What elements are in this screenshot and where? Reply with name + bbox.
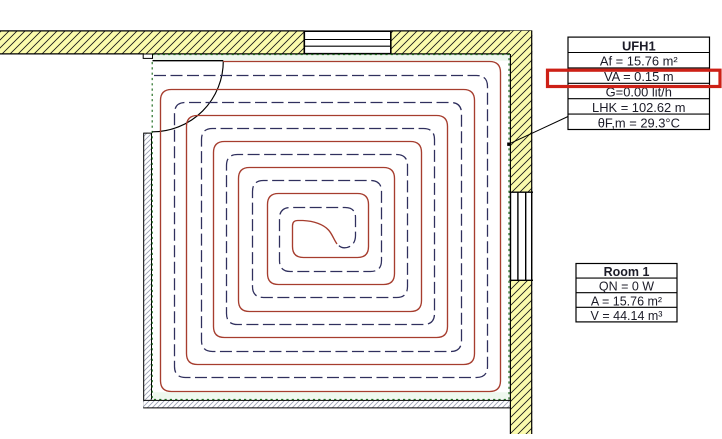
svg-text:Af = 15.76 m²: Af = 15.76 m² bbox=[600, 54, 678, 69]
svg-text:UFH1: UFH1 bbox=[622, 38, 656, 53]
svg-text:Room 1: Room 1 bbox=[604, 265, 650, 279]
svg-text:LHK = 102.62 m: LHK = 102.62 m bbox=[592, 100, 686, 115]
svg-text:A = 15.76 m²: A = 15.76 m² bbox=[591, 294, 662, 308]
svg-text:V = 44.14 m³: V = 44.14 m³ bbox=[591, 309, 663, 323]
svg-text:θF,m = 29.3°C: θF,m = 29.3°C bbox=[598, 115, 680, 130]
svg-text:QN = 0 W: QN = 0 W bbox=[599, 280, 654, 294]
